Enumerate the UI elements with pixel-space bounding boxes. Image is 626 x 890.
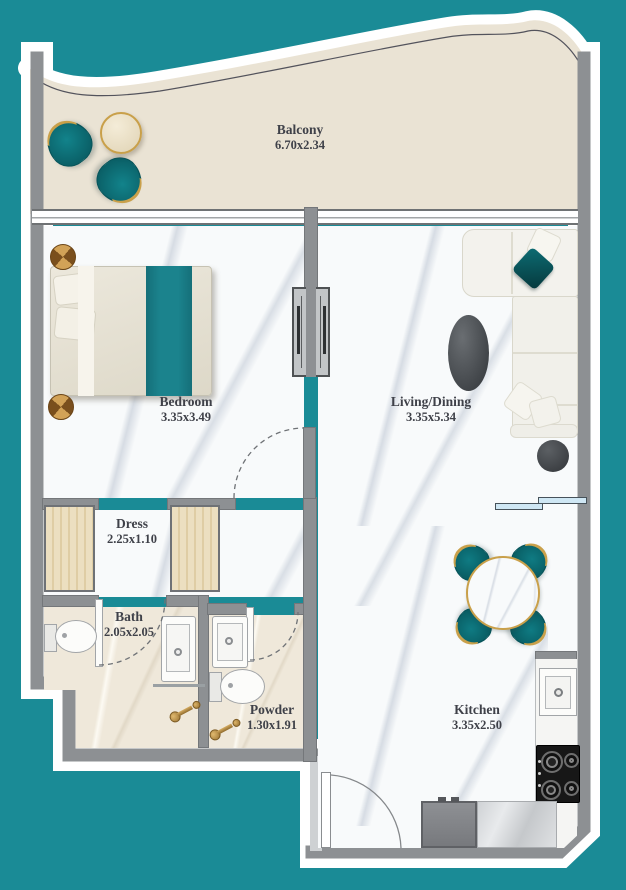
toilet [220, 669, 265, 704]
stove-knob [538, 772, 541, 775]
appliance-handle [451, 797, 459, 802]
room-dims: 3.35x5.34 [361, 410, 501, 425]
bedroom-label: Bedroom 3.35x3.49 [116, 394, 256, 425]
bed-sheet-fold [78, 266, 94, 396]
nightstand [48, 394, 74, 420]
room-name: Balcony [230, 122, 370, 138]
sliding-door-panel-line-right [320, 296, 321, 368]
balcony-chair [38, 111, 101, 174]
balcony-top-band [28, 20, 586, 87]
room-dims: 3.35x2.50 [407, 718, 547, 733]
stove-burner [564, 753, 579, 768]
sofa-seam [513, 352, 577, 354]
balcony-table [100, 112, 142, 154]
kitchen-label: Kitchen 3.35x2.50 [407, 702, 547, 733]
wall-powder-north-right [294, 603, 304, 615]
stove-burner [564, 781, 579, 796]
shower-fixture-bar [177, 705, 193, 716]
room-dims: 2.25x1.10 [62, 532, 202, 547]
wall-bath-north-left [42, 595, 99, 607]
stove-knob [538, 784, 541, 787]
tv-shelf [495, 503, 543, 510]
bedroom-door-leaf [303, 427, 316, 499]
balcony-chair [89, 149, 152, 212]
room-name: Dress [62, 516, 202, 532]
living-dining-label: Living/Dining 3.35x5.34 [361, 394, 501, 425]
sliding-door-track-wall [306, 287, 316, 377]
room-name: Bedroom [116, 394, 256, 410]
room-dims: 6.70x2.34 [230, 138, 370, 153]
room-name: Bath [59, 609, 199, 625]
wall-powder-north-left [207, 603, 247, 615]
appliance [421, 801, 477, 848]
stove-knob [538, 760, 541, 763]
shower-partition [153, 684, 205, 687]
room-dims: 3.35x3.49 [116, 410, 256, 425]
room-name: Kitchen [407, 702, 547, 718]
entry-door-leaf [321, 772, 331, 848]
room-name: Powder [202, 702, 342, 718]
sliding-door-panel-line-left [301, 296, 302, 368]
stove-burner [541, 780, 561, 800]
balcony-label: Balcony 6.70x2.34 [230, 122, 370, 153]
faucet-icon [554, 688, 563, 697]
appliance-handle [438, 797, 446, 802]
coffee-table [448, 315, 489, 391]
bed-teal-runner [146, 266, 192, 396]
nightstand [50, 244, 76, 270]
powder-label: Powder 1.30x1.91 [202, 702, 342, 733]
wall-bedroom-living-upper [304, 207, 318, 290]
room-name: Living/Dining [361, 394, 501, 410]
room-dims: 1.30x1.91 [202, 718, 342, 733]
dress-label: Dress 2.25x1.10 [62, 516, 202, 547]
faucet-icon [225, 637, 233, 645]
sofa-seam [511, 232, 513, 294]
toilet-flush-icon [228, 683, 233, 688]
stove-burner [541, 751, 563, 773]
room-dims: 2.05x2.05 [59, 625, 199, 640]
floor-plan: Balcony 6.70x2.34 Bedroom 3.35x3.49 Livi… [0, 0, 626, 890]
kitchen-lower-counter [477, 801, 557, 848]
sliding-door-handle-left [297, 306, 300, 354]
sliding-door-handle-right [323, 306, 326, 354]
balcony-inner-line [36, 30, 579, 95]
dining-table [466, 556, 540, 630]
tv-shelf [538, 497, 587, 504]
bath-label: Bath 2.05x2.05 [59, 609, 199, 640]
faucet-icon [174, 648, 182, 656]
side-table [537, 440, 569, 472]
